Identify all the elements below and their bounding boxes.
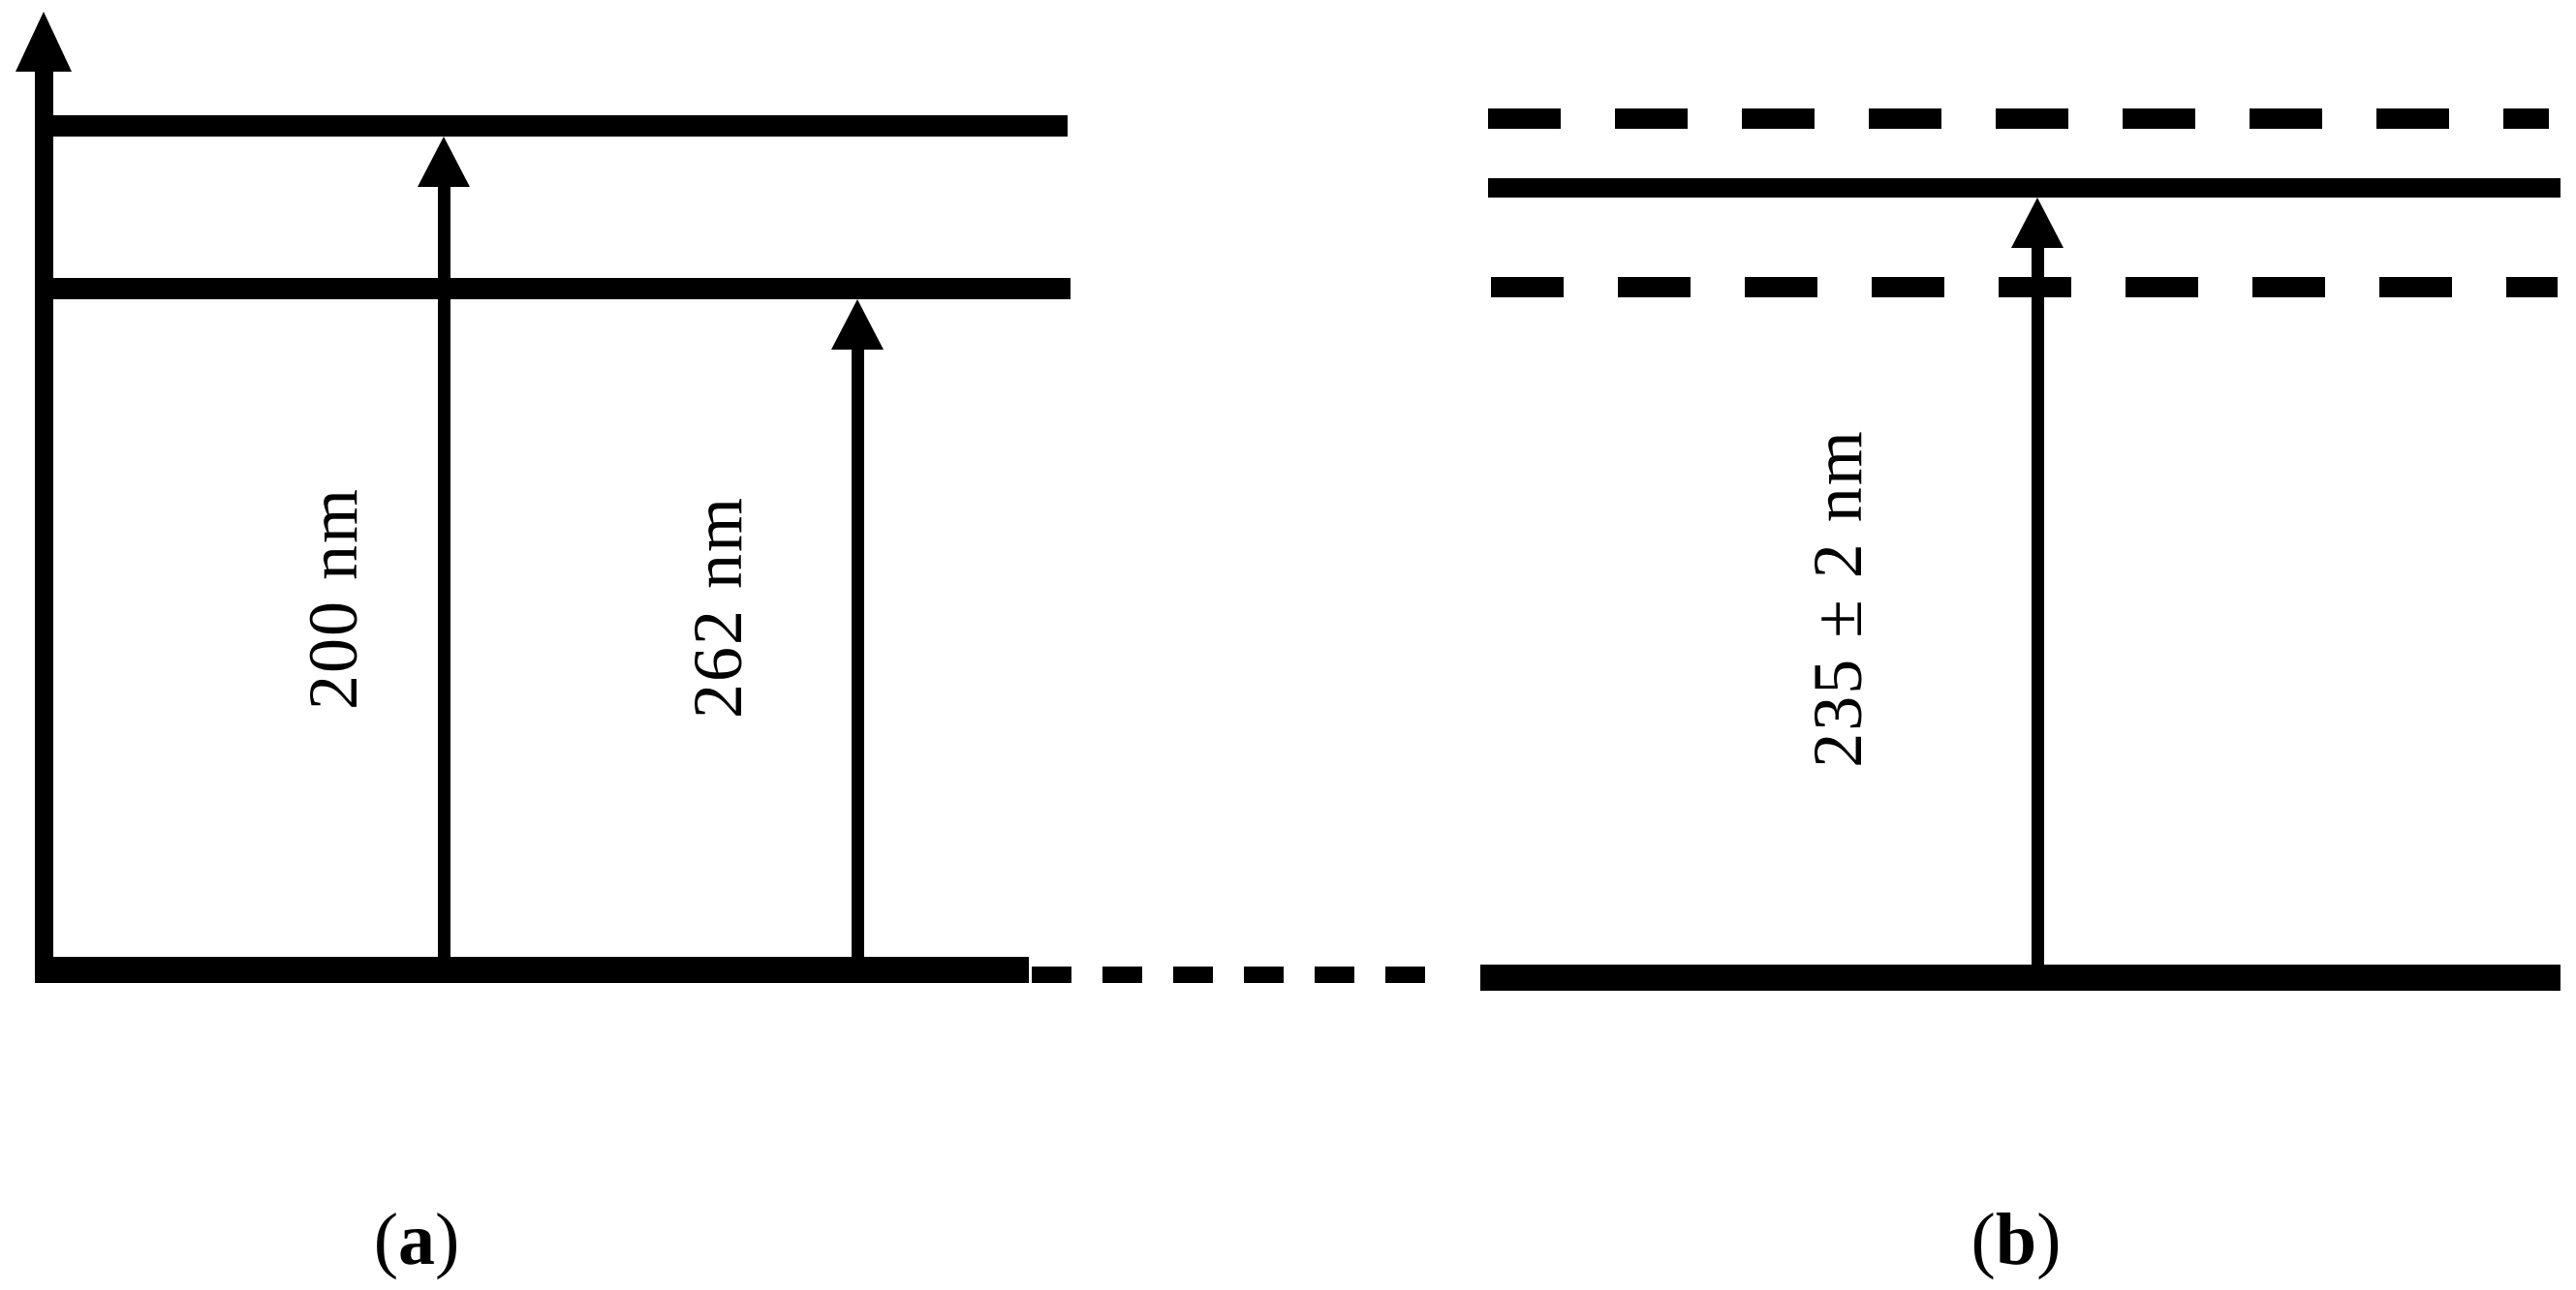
level-band-lower-edge-dashed xyxy=(1491,277,2558,297)
transition-235nm-label: 235 ± 2 nm xyxy=(1803,429,1873,768)
level-resonance xyxy=(1488,178,2560,198)
transition-235nm-arrow xyxy=(2032,245,2044,965)
level-band-upper-edge-dashed xyxy=(1488,108,2549,129)
caption-b-letter: b xyxy=(1996,1199,2036,1280)
energy-level-diagram: 200 nm 262 nm (a) 235 ± 2 nm (b) xyxy=(0,0,2576,1290)
transition-235nm-arrowhead-icon xyxy=(2011,198,2064,248)
caption-b-close-paren: ) xyxy=(2036,1199,2061,1280)
caption-panel-b: (b) xyxy=(1971,1203,2062,1276)
panel-b: 235 ± 2 nm (b) xyxy=(0,0,2576,1290)
level-ground-b xyxy=(1480,965,2560,991)
caption-b-open-paren: ( xyxy=(1971,1199,1996,1280)
